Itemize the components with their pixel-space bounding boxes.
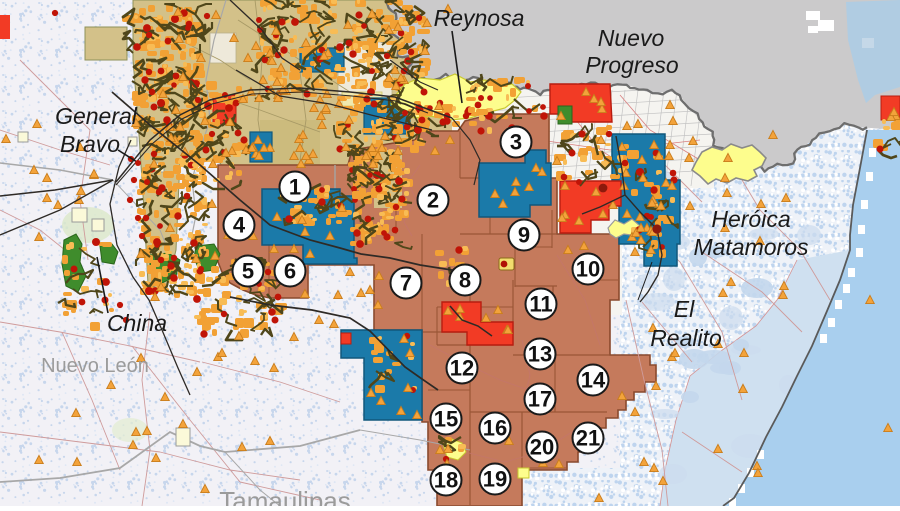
svg-text:12: 12 — [450, 356, 474, 381]
svg-text:11: 11 — [529, 292, 552, 317]
svg-text:Reynosa: Reynosa — [434, 5, 525, 31]
svg-text:7: 7 — [400, 271, 412, 296]
svg-text:Nuevo: Nuevo — [598, 25, 665, 51]
svg-text:9: 9 — [518, 223, 530, 248]
svg-text:18: 18 — [434, 468, 458, 493]
svg-text:8: 8 — [459, 268, 471, 293]
svg-text:Nuevo León: Nuevo León — [41, 355, 149, 377]
svg-text:General: General — [55, 103, 138, 129]
svg-text:Tamaulipas: Tamaulipas — [219, 486, 351, 506]
svg-text:10: 10 — [576, 257, 600, 282]
svg-text:China: China — [107, 310, 167, 336]
svg-text:6: 6 — [284, 259, 296, 284]
svg-text:4: 4 — [233, 213, 246, 238]
svg-text:19: 19 — [483, 467, 507, 492]
svg-text:2: 2 — [427, 188, 439, 213]
svg-text:5: 5 — [242, 259, 254, 284]
svg-text:20: 20 — [530, 435, 554, 460]
svg-text:21: 21 — [576, 426, 600, 451]
svg-text:El: El — [674, 296, 695, 322]
svg-text:13: 13 — [528, 342, 552, 367]
svg-text:3: 3 — [510, 130, 522, 155]
svg-text:Bravo: Bravo — [60, 131, 120, 157]
svg-text:Realito: Realito — [650, 325, 722, 351]
svg-text:16: 16 — [483, 416, 507, 441]
svg-text:Heróica: Heróica — [711, 206, 790, 232]
svg-text:Progreso: Progreso — [585, 52, 679, 78]
svg-text:15: 15 — [434, 407, 458, 432]
svg-text:17: 17 — [528, 387, 552, 412]
svg-text:Matamoros: Matamoros — [693, 234, 809, 260]
svg-text:14: 14 — [581, 368, 606, 393]
svg-text:1: 1 — [289, 175, 301, 200]
